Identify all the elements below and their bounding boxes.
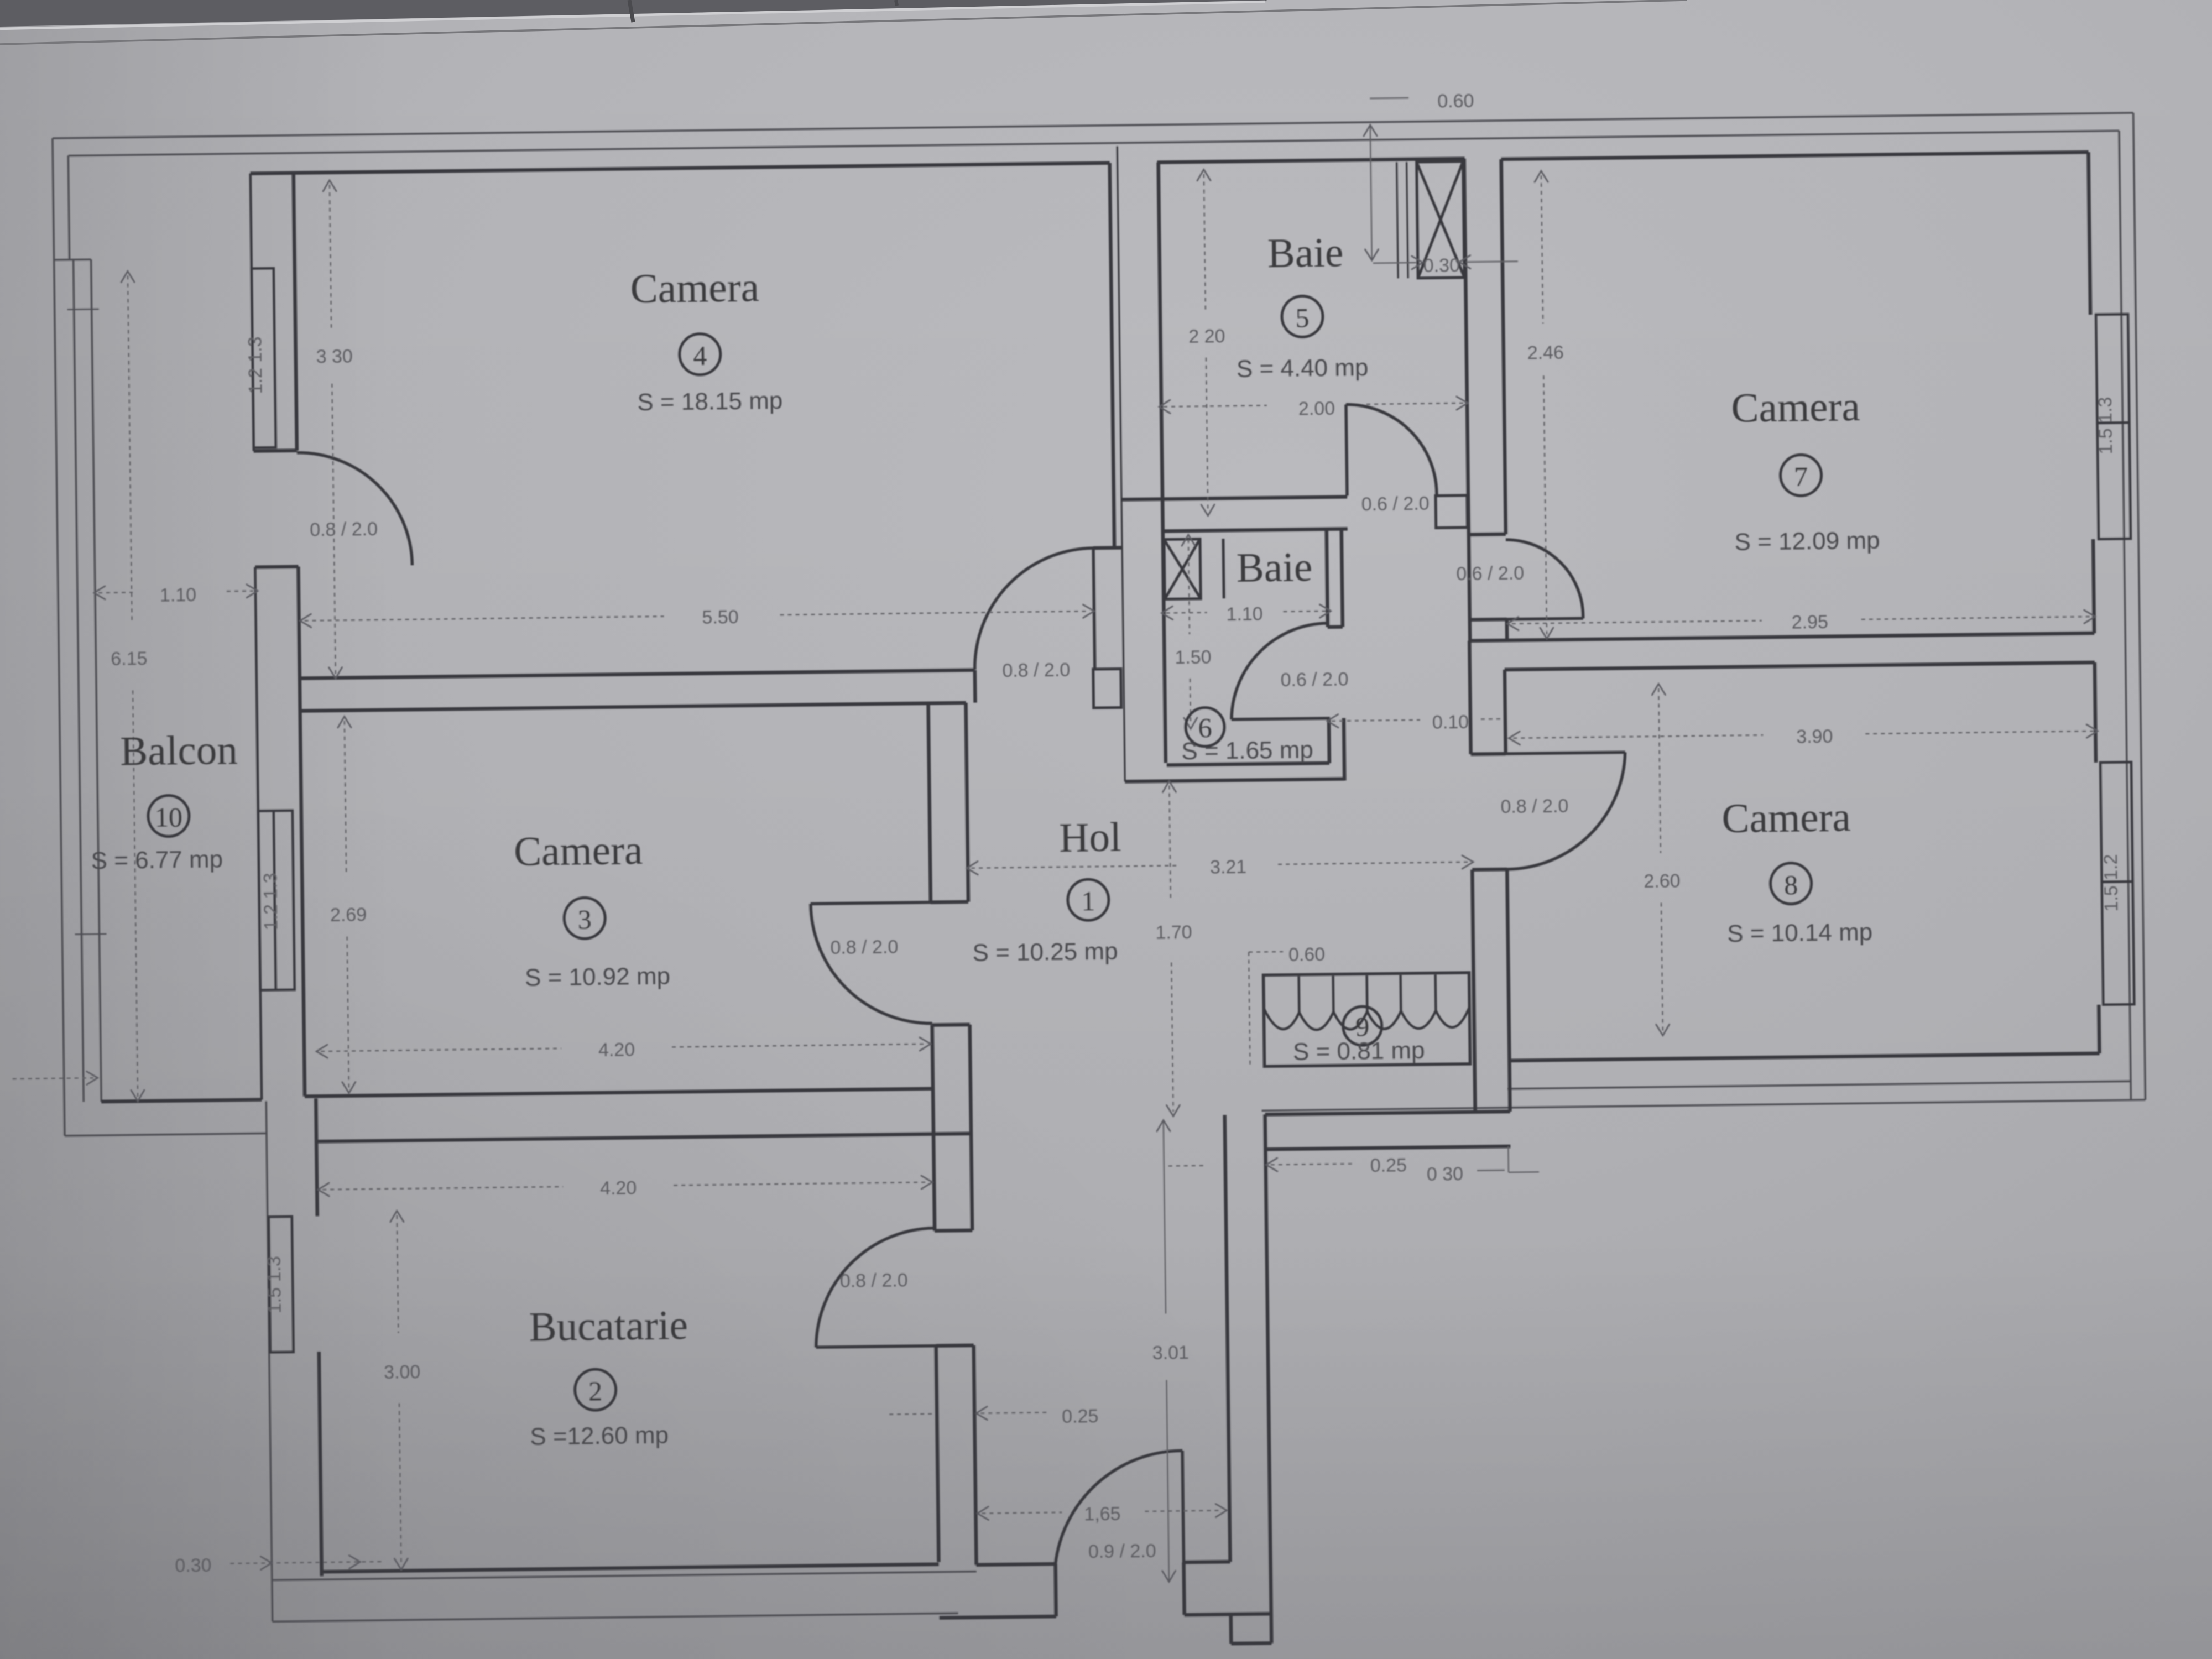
svg-text:S = 6.77 mp: S = 6.77 mp bbox=[91, 846, 223, 874]
svg-text:Balcon: Balcon bbox=[120, 727, 238, 775]
svg-text:3.21: 3.21 bbox=[1210, 857, 1247, 878]
svg-text:S = 10.92 mp: S = 10.92 mp bbox=[525, 962, 671, 991]
svg-text:0.60: 0.60 bbox=[1288, 944, 1326, 966]
svg-text:0 30: 0 30 bbox=[1427, 1164, 1464, 1185]
svg-text:S = 18.15 mp: S = 18.15 mp bbox=[637, 387, 783, 416]
svg-text:1.10: 1.10 bbox=[1226, 603, 1263, 625]
svg-text:Camera: Camera bbox=[630, 264, 759, 312]
svg-text:6.15: 6.15 bbox=[111, 648, 148, 670]
svg-text:2.46: 2.46 bbox=[1527, 342, 1564, 364]
svg-text:0.6 / 2.0: 0.6 / 2.0 bbox=[1456, 563, 1524, 585]
svg-text:Bucatarie: Bucatarie bbox=[529, 1302, 688, 1350]
svg-text:3.01: 3.01 bbox=[1152, 1342, 1190, 1364]
svg-text:0.25: 0.25 bbox=[1062, 1406, 1099, 1427]
svg-text:1.2 1.3: 1.2 1.3 bbox=[244, 336, 266, 394]
svg-text:1.5 1.2: 1.5 1.2 bbox=[2100, 854, 2122, 911]
svg-text:S =12.60 mp: S =12.60 mp bbox=[530, 1422, 669, 1451]
svg-text:2.69: 2.69 bbox=[330, 904, 367, 926]
svg-text:3 30: 3 30 bbox=[316, 346, 353, 367]
svg-text:0.60: 0.60 bbox=[1437, 91, 1474, 112]
svg-text:0.6 / 2.0: 0.6 / 2.0 bbox=[1361, 493, 1430, 515]
svg-text:S = 12.09 mp: S = 12.09 mp bbox=[1734, 527, 1880, 556]
svg-text:3.00: 3.00 bbox=[384, 1361, 421, 1383]
svg-text:7: 7 bbox=[1794, 461, 1808, 492]
svg-text:0.8 / 2.0: 0.8 / 2.0 bbox=[830, 936, 898, 958]
svg-text:0.25: 0.25 bbox=[1370, 1155, 1407, 1176]
svg-text:1.2 1.3: 1.2 1.3 bbox=[260, 873, 281, 930]
svg-text:2.00: 2.00 bbox=[1298, 398, 1335, 420]
svg-text:0.6 / 2.0: 0.6 / 2.0 bbox=[1280, 669, 1348, 690]
svg-text:1.50: 1.50 bbox=[1175, 646, 1212, 668]
svg-text:Camera: Camera bbox=[1731, 384, 1860, 431]
svg-text:S = 1.65 mp: S = 1.65 mp bbox=[1181, 736, 1313, 765]
svg-text:1.10: 1.10 bbox=[160, 585, 197, 606]
svg-text:0.9 / 2.0: 0.9 / 2.0 bbox=[1088, 1541, 1156, 1562]
svg-text:3: 3 bbox=[577, 904, 592, 935]
svg-text:0.30: 0.30 bbox=[1423, 255, 1460, 276]
svg-text:S = 10.25 mp: S = 10.25 mp bbox=[972, 938, 1118, 967]
svg-text:Hol: Hol bbox=[1059, 814, 1122, 860]
svg-text:4.20: 4.20 bbox=[598, 1039, 635, 1061]
svg-text:1,65: 1,65 bbox=[1084, 1504, 1121, 1525]
svg-text:0.8 / 2.0: 0.8 / 2.0 bbox=[310, 519, 378, 540]
svg-text:5: 5 bbox=[1295, 302, 1310, 333]
svg-text:0.30: 0.30 bbox=[175, 1555, 212, 1577]
svg-text:0.8 / 2.0: 0.8 / 2.0 bbox=[1002, 660, 1070, 681]
svg-text:5.50: 5.50 bbox=[702, 607, 739, 628]
svg-text:1.5 1.3: 1.5 1.3 bbox=[2095, 397, 2116, 454]
svg-text:Baie: Baie bbox=[1267, 229, 1343, 276]
svg-text:4.20: 4.20 bbox=[600, 1177, 637, 1199]
svg-text:1: 1 bbox=[1081, 885, 1095, 916]
svg-text:S = 4.40 mp: S = 4.40 mp bbox=[1237, 354, 1369, 383]
svg-text:Camera: Camera bbox=[1721, 794, 1851, 842]
svg-text:2: 2 bbox=[588, 1375, 603, 1406]
svg-text:0.8 / 2.0: 0.8 / 2.0 bbox=[840, 1270, 908, 1291]
svg-text:2.60: 2.60 bbox=[1644, 870, 1681, 892]
svg-text:0.10: 0.10 bbox=[1432, 712, 1469, 733]
svg-text:8: 8 bbox=[1784, 869, 1798, 900]
svg-text:Camera: Camera bbox=[514, 827, 643, 875]
svg-text:Baie: Baie bbox=[1236, 544, 1312, 591]
svg-text:S = 10.14 mp: S = 10.14 mp bbox=[1727, 919, 1873, 947]
svg-text:2.95: 2.95 bbox=[1792, 612, 1829, 633]
svg-text:4: 4 bbox=[693, 340, 707, 371]
svg-text:1.5 1.3: 1.5 1.3 bbox=[264, 1256, 285, 1313]
svg-text:3.90: 3.90 bbox=[1796, 726, 1833, 748]
svg-text:10: 10 bbox=[155, 801, 183, 833]
svg-text:2 20: 2 20 bbox=[1188, 326, 1225, 347]
svg-text:0.8 / 2.0: 0.8 / 2.0 bbox=[1500, 796, 1568, 817]
svg-text:S = 0.81 mp: S = 0.81 mp bbox=[1293, 1037, 1425, 1066]
svg-text:1.70: 1.70 bbox=[1155, 922, 1192, 943]
